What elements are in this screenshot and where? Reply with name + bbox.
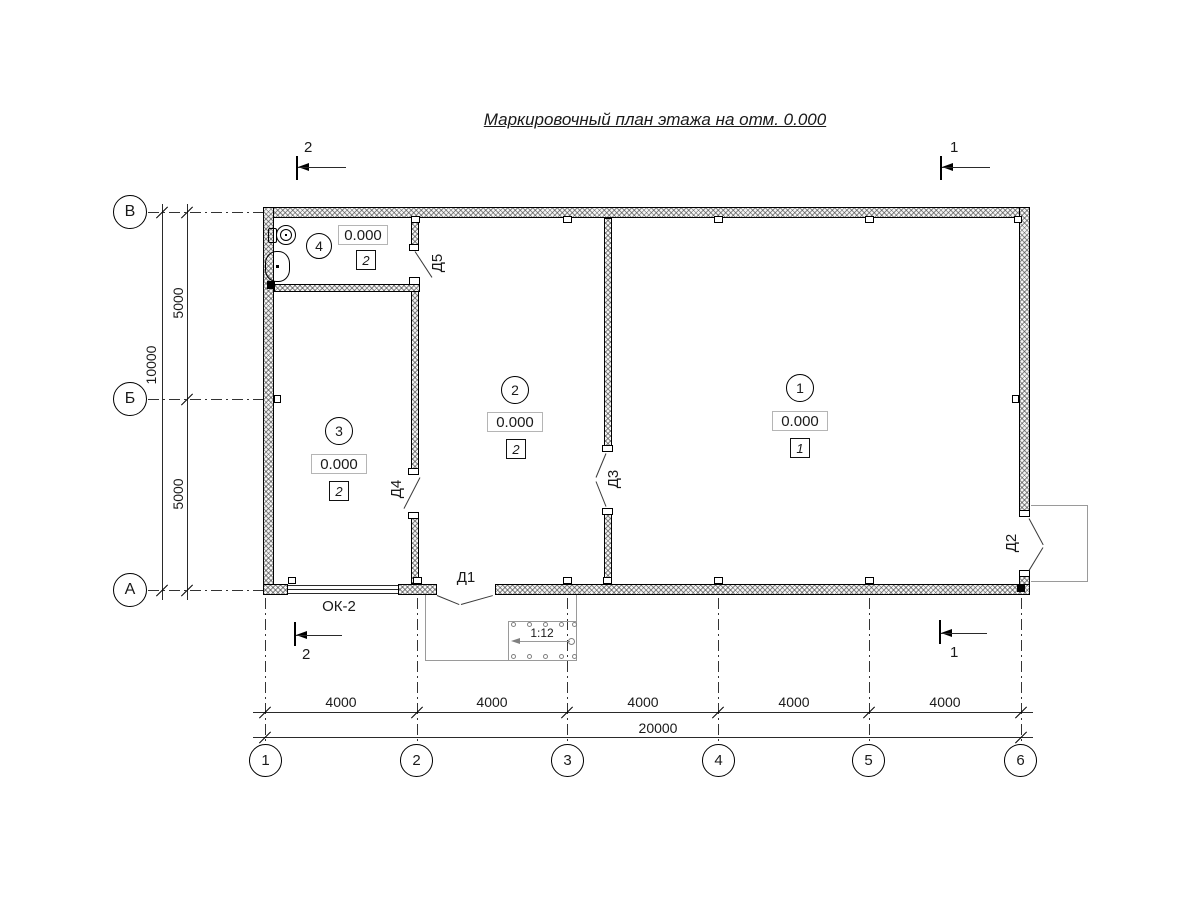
ramp-arrow-origin: [568, 638, 575, 645]
wall-end-cap: [408, 468, 419, 475]
axis-line-2: [417, 598, 418, 748]
wall-int2-bottom: [604, 508, 612, 584]
wall-end-cap: [602, 445, 613, 452]
axis-line-4: [718, 598, 719, 748]
pilaster: [1014, 216, 1022, 223]
ramp-slope-label: 1:12: [522, 626, 562, 639]
pilaster: [865, 216, 874, 223]
col-axis-bubble-4: 4: [702, 744, 735, 777]
door-label-d1: Д1: [449, 569, 483, 585]
ramp-arrow-icon: [511, 638, 520, 644]
wall-int-horizontal: [274, 284, 420, 292]
door-label-d3: Д3: [605, 464, 621, 494]
sink-icon: [276, 265, 279, 268]
wall-bottom-mid: [398, 584, 437, 595]
room-number-1: 1: [786, 374, 814, 402]
ramp-post: [543, 654, 548, 659]
room-3-type-badge: 2: [329, 481, 349, 501]
dim-label-10000: 10000: [143, 335, 159, 395]
toilet-icon: [285, 234, 287, 236]
wall-int1-bottom: [411, 512, 419, 584]
room-number-4: 4: [306, 233, 332, 259]
wall-int2-top: [604, 218, 612, 452]
drawing-title: Маркировочный план этажа на отм. 0.000: [405, 110, 905, 130]
dim-label-20000: 20000: [628, 720, 688, 736]
dim-label-5000-top: 5000: [170, 281, 186, 325]
section-mark-2-bottom: 2: [302, 646, 310, 663]
row-axis-bubble-a: А: [113, 573, 147, 607]
col-axis-bubble-6: 6: [1004, 744, 1037, 777]
side-porch: [1031, 505, 1088, 582]
section-mark-2-top: 2: [304, 139, 312, 156]
pilaster: [411, 216, 420, 223]
col-axis-bubble-3: 3: [551, 744, 584, 777]
wall-end-cap: [409, 277, 420, 285]
dim-label-4000: 4000: [923, 694, 967, 710]
wall-bottom-left: [263, 584, 288, 595]
dim-line-bottom-total: [253, 737, 1033, 738]
axis-line-a: [148, 590, 264, 591]
door-label-d5: Д5: [429, 248, 445, 278]
col-axis-bubble-2: 2: [400, 744, 433, 777]
wall-end-cap: [602, 508, 613, 515]
dim-label-4000: 4000: [772, 694, 816, 710]
col-axis-bubble-5: 5: [852, 744, 885, 777]
axis-line-5: [869, 598, 870, 748]
room-1-elevation: 0.000: [772, 411, 828, 431]
axis-line-6: [1021, 598, 1022, 748]
pilaster: [865, 577, 874, 584]
room-4-type-badge: 2: [356, 250, 376, 270]
pilaster: [563, 216, 572, 223]
room-2-elevation: 0.000: [487, 412, 543, 432]
dim-line-bottom-segments: [253, 712, 1033, 713]
room-number-3: 3: [325, 417, 353, 445]
dim-line-left-total: [162, 204, 163, 600]
room-1-type-badge: 1: [790, 438, 810, 458]
axis-line-v: [148, 212, 264, 213]
section-cut-line: [296, 635, 342, 636]
wall-top: [263, 207, 1030, 218]
room-2-type-badge: 2: [506, 439, 526, 459]
ramp-post: [559, 654, 564, 659]
window-line: [288, 585, 398, 586]
section-cut-line: [941, 633, 987, 634]
wall-junction: [267, 281, 275, 289]
room-number-2: 2: [501, 376, 529, 404]
section-mark-1-bottom: 1: [950, 644, 958, 661]
wall-end-cap: [1019, 510, 1030, 517]
dim-label-4000: 4000: [470, 694, 514, 710]
wall-right-upper: [1019, 207, 1030, 517]
wall-end-cap: [409, 244, 419, 251]
wall-end-cap: [1019, 570, 1030, 577]
dim-label-4000: 4000: [621, 694, 665, 710]
wall-end-cap: [408, 512, 419, 519]
ramp-post: [572, 654, 577, 659]
window-label: ОК-2: [309, 598, 369, 614]
wall-int1-mid: [411, 284, 419, 475]
pilaster: [714, 216, 723, 223]
pilaster: [1012, 395, 1019, 403]
pilaster: [714, 577, 723, 584]
wall-junction: [1017, 584, 1025, 592]
ramp-post: [511, 622, 516, 627]
door-leaf-d4: [404, 477, 421, 509]
window-line: [288, 589, 398, 590]
door-label-d2: Д2: [1003, 528, 1019, 558]
room-3-elevation: 0.000: [311, 454, 367, 474]
ramp-post: [511, 654, 516, 659]
wall-bottom-right: [495, 584, 1030, 595]
axis-line-1: [265, 598, 266, 748]
dim-label-5000-bottom: 5000: [170, 472, 186, 516]
pilaster: [603, 577, 612, 584]
room-4-elevation: 0.000: [338, 225, 388, 245]
pilaster: [413, 577, 422, 584]
door-label-d4: Д4: [388, 474, 404, 504]
ramp-direction-line: [514, 641, 570, 642]
axis-line-b: [148, 399, 264, 400]
ramp-post: [572, 622, 577, 627]
pilaster: [274, 395, 281, 403]
ramp-post: [527, 654, 532, 659]
pilaster: [563, 577, 572, 584]
row-axis-bubble-v: В: [113, 195, 147, 229]
dim-label-4000: 4000: [319, 694, 363, 710]
dim-line-left-segments: [187, 204, 188, 600]
window-line: [288, 593, 398, 594]
floor-plan-sheet: Маркировочный план этажа на отм. 0.000: [0, 0, 1200, 900]
pilaster: [288, 577, 296, 584]
section-cut-line: [942, 167, 990, 168]
col-axis-bubble-1: 1: [249, 744, 282, 777]
section-mark-1-top: 1: [950, 139, 958, 156]
row-axis-bubble-b: Б: [113, 382, 147, 416]
section-cut-line: [298, 167, 346, 168]
